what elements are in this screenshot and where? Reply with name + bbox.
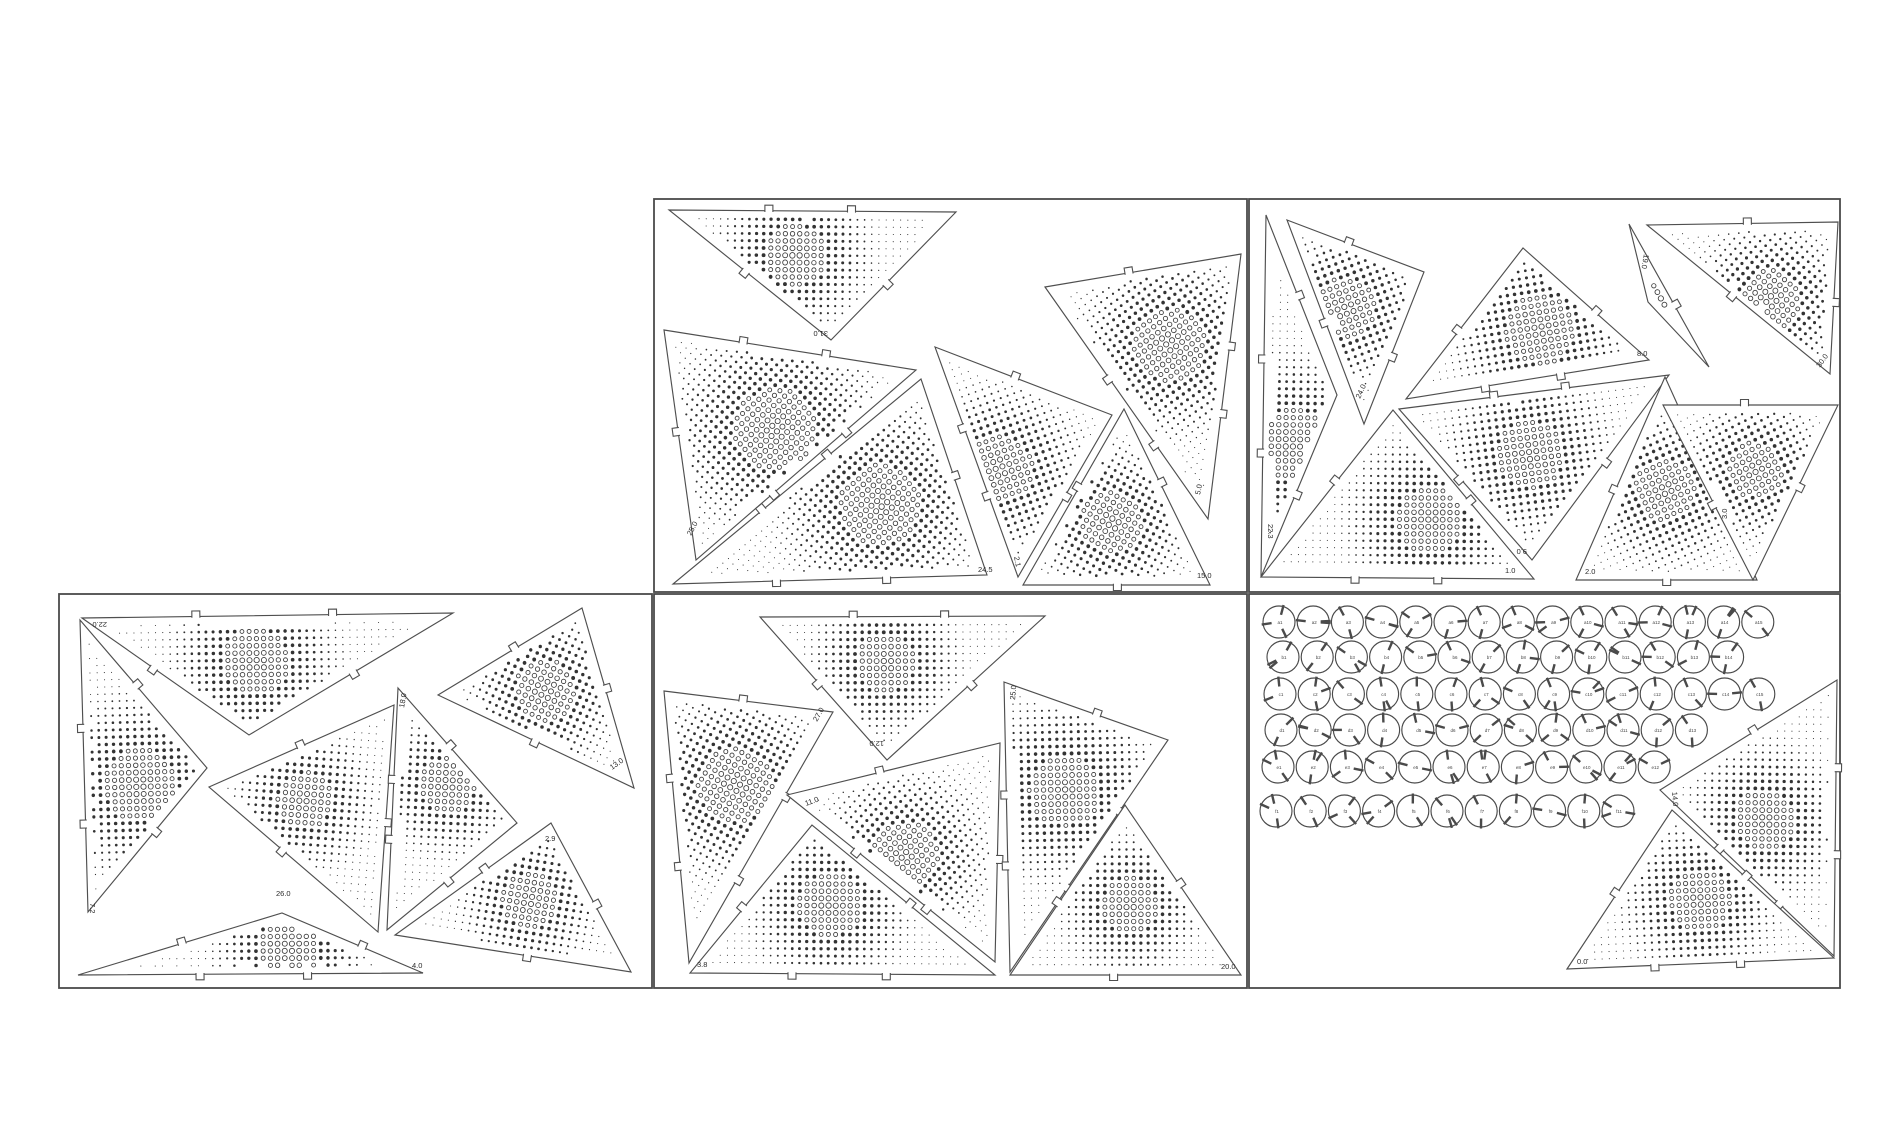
disc-slot xyxy=(1516,775,1517,785)
disc-label: a13 xyxy=(1687,620,1695,625)
connector-disc: e2 xyxy=(1296,750,1328,784)
disc-slot xyxy=(1296,620,1306,621)
connector-disc: b11 xyxy=(1609,641,1641,673)
disc-label: e5 xyxy=(1413,765,1419,770)
disc-slot xyxy=(1380,677,1382,687)
connector-disc: b9 xyxy=(1541,641,1573,674)
connector-disc: d7 xyxy=(1470,714,1502,746)
disc-label: a6 xyxy=(1448,620,1454,625)
disc-label: c10 xyxy=(1585,692,1593,697)
disc-slot xyxy=(1278,677,1279,687)
disc-label: a5 xyxy=(1414,620,1420,625)
disc-label: b8 xyxy=(1521,655,1527,660)
disc-label: d9 xyxy=(1553,728,1559,733)
disc-label: c3 xyxy=(1347,692,1352,697)
disc-label: c13 xyxy=(1688,692,1696,697)
disc-slot xyxy=(1384,701,1385,711)
disc-label: c7 xyxy=(1484,692,1489,697)
connector-disc: b3 xyxy=(1335,641,1367,673)
disc-label: a14 xyxy=(1721,620,1729,625)
disc-label: c6 xyxy=(1450,692,1455,697)
connector-disc: c3 xyxy=(1332,678,1364,710)
connector-disc: f3 xyxy=(1328,795,1360,827)
connector-disc: c4 xyxy=(1367,677,1399,712)
connector-disc: a8 xyxy=(1502,606,1534,638)
disc-label: a15 xyxy=(1755,620,1763,625)
disc-label: d5 xyxy=(1416,728,1422,733)
disc-slot xyxy=(1655,677,1656,687)
disc-slot xyxy=(1418,701,1419,711)
triangle-label: 24.5 xyxy=(978,565,993,574)
connector-disc: a13 xyxy=(1673,605,1705,639)
triangle-label: 3.0 xyxy=(1720,509,1729,519)
triangle-label: 3.8 xyxy=(697,960,707,969)
disc-slot xyxy=(1262,623,1272,625)
disc-label: d13 xyxy=(1689,728,1697,733)
triangle-label: 14.0 xyxy=(1670,791,1680,806)
disc-slot xyxy=(1516,794,1517,804)
connector-disc: c10 xyxy=(1571,678,1605,710)
triangle-label: 22.3 xyxy=(1266,524,1275,539)
connector-disc: c8 xyxy=(1503,678,1535,710)
disc-label: f8 xyxy=(1515,809,1519,814)
triangle-label: 15.0 xyxy=(1197,571,1212,580)
connector-disc: d2 xyxy=(1298,714,1331,746)
disc-label: f1 xyxy=(1275,809,1279,814)
disc-slot xyxy=(1484,750,1485,760)
connector-disc: f11 xyxy=(1601,795,1635,827)
disc-slot xyxy=(1315,677,1316,687)
disc-label: b13 xyxy=(1691,655,1699,660)
connector-disc: a5 xyxy=(1400,606,1432,638)
disc-label: d4 xyxy=(1382,728,1388,733)
disc-label: c9 xyxy=(1552,692,1557,697)
triangle-label: 2.0 xyxy=(1585,567,1595,576)
connector-disc: b7 xyxy=(1472,641,1504,673)
connector-disc: b2 xyxy=(1301,641,1333,673)
disc-label: b11 xyxy=(1622,655,1630,660)
disc-label: d7 xyxy=(1485,728,1491,733)
disc-slot xyxy=(1321,621,1331,622)
disc-slot xyxy=(1310,774,1311,784)
disc-label: d10 xyxy=(1586,728,1594,733)
connector-disc: d1 xyxy=(1265,714,1297,746)
triangle-label: 26.0 xyxy=(276,889,291,898)
connector-disc: d8 xyxy=(1504,714,1537,746)
disc-label: a1 xyxy=(1277,620,1283,625)
disc-label: e3 xyxy=(1345,765,1351,770)
cut-layout-canvas: 31.025.024.52.115.05.022.324.08.01.09.02… xyxy=(0,0,1900,1140)
disc-label: d3 xyxy=(1348,728,1354,733)
disc-label: a3 xyxy=(1346,620,1352,625)
disc-label: e12 xyxy=(1651,765,1659,770)
disc-slot xyxy=(1452,702,1453,712)
disc-slot xyxy=(1532,808,1542,810)
disc-label: a9 xyxy=(1551,620,1557,625)
disc-slot xyxy=(1345,750,1346,760)
disc-label: a2 xyxy=(1312,620,1318,625)
connector-disc: e10 xyxy=(1570,751,1602,783)
triangle-label: 9.0 xyxy=(1517,547,1527,556)
disc-label: a12 xyxy=(1652,620,1660,625)
disc-label: a11 xyxy=(1618,620,1626,625)
disc-label: c2 xyxy=(1313,692,1318,697)
triangle-label: 4.0 xyxy=(412,961,422,970)
disc-label: c8 xyxy=(1518,692,1523,697)
disc-label: e11 xyxy=(1617,765,1625,770)
connector-disc: e12 xyxy=(1638,751,1670,783)
disc-slot xyxy=(1427,654,1437,656)
disc-slot xyxy=(1692,738,1693,748)
disc-label: b2 xyxy=(1316,655,1322,660)
disc-label: c4 xyxy=(1381,692,1386,697)
disc-label: b1 xyxy=(1281,655,1287,660)
disc-label: d2 xyxy=(1314,728,1320,733)
triangle-label: 25.0 xyxy=(1008,685,1018,700)
disc-slot xyxy=(1584,794,1585,804)
connector-disc: c7 xyxy=(1469,677,1501,710)
disc-label: b7 xyxy=(1487,655,1493,660)
disc-label: e2 xyxy=(1311,765,1317,770)
connector-disc: f2 xyxy=(1294,795,1326,827)
connector-disc: a4 xyxy=(1365,606,1399,638)
connector-disc: a14 xyxy=(1708,606,1740,639)
connector-disc: b13 xyxy=(1677,640,1709,673)
disc-slot xyxy=(1277,818,1278,828)
triangle-label: 20.0 xyxy=(1221,962,1236,971)
disc-label: f7 xyxy=(1480,809,1484,814)
disc-slot xyxy=(1588,664,1589,674)
connector-disc: f1 xyxy=(1260,794,1292,828)
triangle-label: 8.0 xyxy=(1637,349,1647,358)
disc-label: f2 xyxy=(1309,809,1313,814)
disc-label: f4 xyxy=(1378,809,1382,814)
disc-label: d12 xyxy=(1654,728,1662,733)
connector-disc: b6 xyxy=(1438,641,1471,673)
disc-label: c12 xyxy=(1654,692,1662,697)
disc-slot xyxy=(1571,691,1581,693)
disc-label: f10 xyxy=(1582,809,1589,814)
disc-label: b6 xyxy=(1452,655,1458,660)
cut-layout-page: 31.025.024.52.115.05.022.324.08.01.09.02… xyxy=(0,0,1900,1140)
connector-disc: d10 xyxy=(1573,714,1606,746)
connector-disc: a7 xyxy=(1468,606,1500,639)
disc-slot xyxy=(1555,701,1556,711)
connector-disc: d6 xyxy=(1435,714,1469,746)
disc-label: b12 xyxy=(1656,655,1664,660)
disc-label: e9 xyxy=(1550,765,1556,770)
connector-disc: c11 xyxy=(1606,678,1638,710)
disc-label: b3 xyxy=(1350,655,1356,660)
disc-label: d6 xyxy=(1450,728,1456,733)
disc-slot xyxy=(1656,738,1657,748)
disc-label: b10 xyxy=(1588,655,1596,660)
connector-disc: e5 xyxy=(1398,751,1432,783)
disc-slot xyxy=(1732,692,1742,693)
disc-label: c11 xyxy=(1620,692,1627,697)
connector-disc: c13 xyxy=(1674,678,1706,710)
triangle-label: 0.0 xyxy=(1577,957,1587,966)
disc-label: f6 xyxy=(1446,809,1450,814)
disc-label: e7 xyxy=(1482,765,1488,770)
triangle-label: 22.0 xyxy=(92,620,107,629)
disc-slot xyxy=(1556,713,1557,723)
disc-label: d8 xyxy=(1519,728,1525,733)
triangle-label: 12.0 xyxy=(869,739,884,748)
disc-slot xyxy=(1628,623,1638,624)
disc-label: f3 xyxy=(1344,809,1348,814)
disc-slot xyxy=(1458,621,1468,622)
disc-label: e6 xyxy=(1447,765,1453,770)
disc-label: a4 xyxy=(1380,620,1386,625)
connector-disc: e4 xyxy=(1365,751,1397,783)
disc-slot xyxy=(1481,750,1482,760)
disc-label: d11 xyxy=(1620,728,1628,733)
disc-label: f9 xyxy=(1549,809,1553,814)
disc-label: a10 xyxy=(1584,620,1592,625)
connector-disc: f6 xyxy=(1431,795,1463,828)
triangle-label: 31.0 xyxy=(813,329,828,338)
disc-label: c5 xyxy=(1415,692,1420,697)
disc-label: e10 xyxy=(1583,765,1591,770)
disc-label: e1 xyxy=(1276,765,1282,770)
disc-slot xyxy=(1530,658,1540,659)
disc-label: b4 xyxy=(1384,655,1390,660)
disc-label: f11 xyxy=(1616,809,1622,814)
disc-slot xyxy=(1524,640,1526,650)
connector-disc: a3 xyxy=(1331,606,1363,639)
connector-disc: b4 xyxy=(1370,641,1402,674)
disc-label: a8 xyxy=(1517,620,1523,625)
connector-disc: b1 xyxy=(1267,641,1299,673)
connector-disc: f9 xyxy=(1532,795,1566,827)
connector-disc: a15 xyxy=(1742,606,1774,638)
disc-label: e4 xyxy=(1379,765,1385,770)
disc-label: c1 xyxy=(1279,692,1284,697)
triangle-label: 1.0 xyxy=(1505,566,1515,575)
connector-disc: e11 xyxy=(1604,751,1636,783)
disc-label: b14 xyxy=(1725,655,1733,660)
disc-label: c15 xyxy=(1756,692,1764,697)
disc-label: c14 xyxy=(1722,692,1730,697)
disc-label: a7 xyxy=(1483,620,1489,625)
disc-label: b9 xyxy=(1555,655,1561,660)
disc-label: d1 xyxy=(1279,728,1285,733)
disc-label: e8 xyxy=(1516,765,1522,770)
disc-label: f5 xyxy=(1412,809,1416,814)
connector-disc: a10 xyxy=(1571,606,1604,638)
disc-label: b5 xyxy=(1418,655,1424,660)
triangle-label: 2.9 xyxy=(545,834,555,843)
triangle-label: 7.2 xyxy=(88,903,97,913)
disc-slot xyxy=(1447,750,1448,760)
disc-slot xyxy=(1381,737,1383,747)
